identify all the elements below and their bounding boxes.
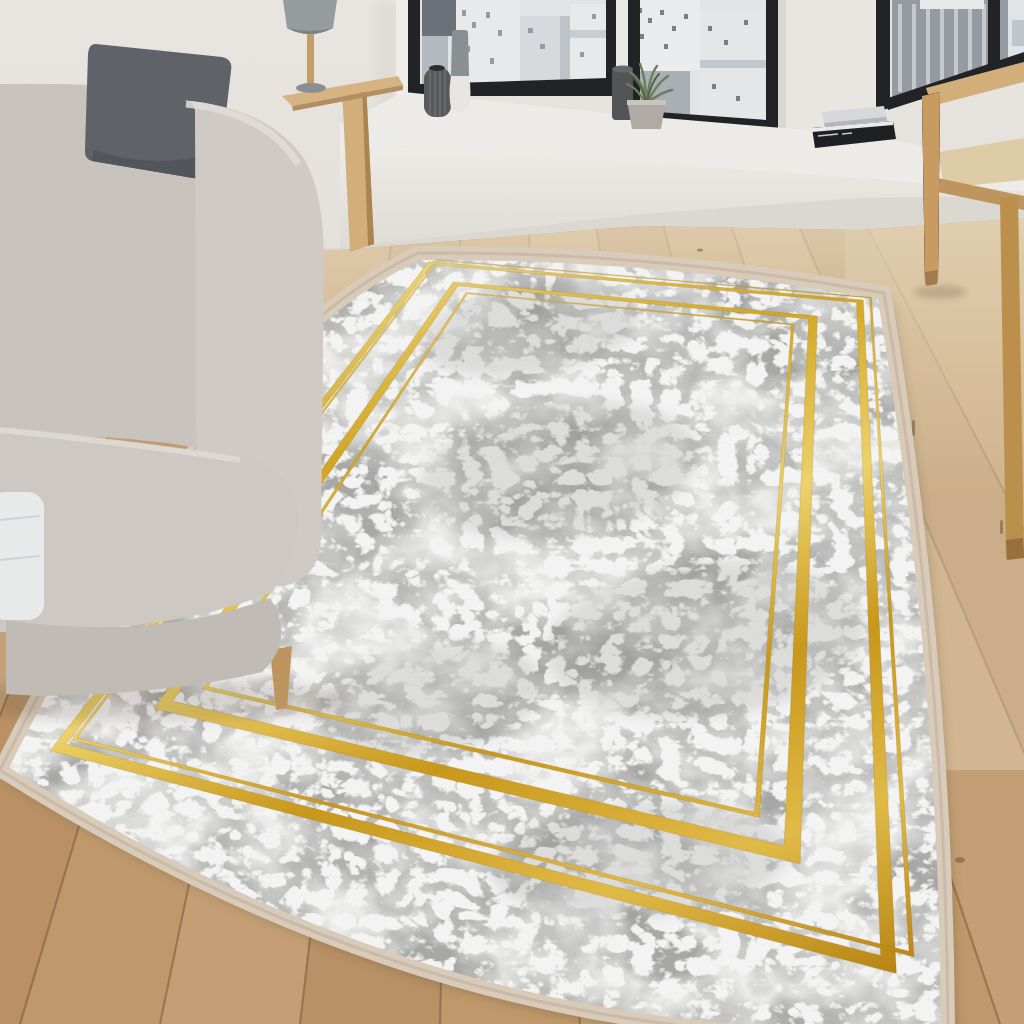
scene-canvas: Living room photo: grey marble-pattern a… [0,0,1024,1024]
living-room-photo: Living room photo: grey marble-pattern a… [0,0,1024,1024]
vignette [0,0,1024,1024]
